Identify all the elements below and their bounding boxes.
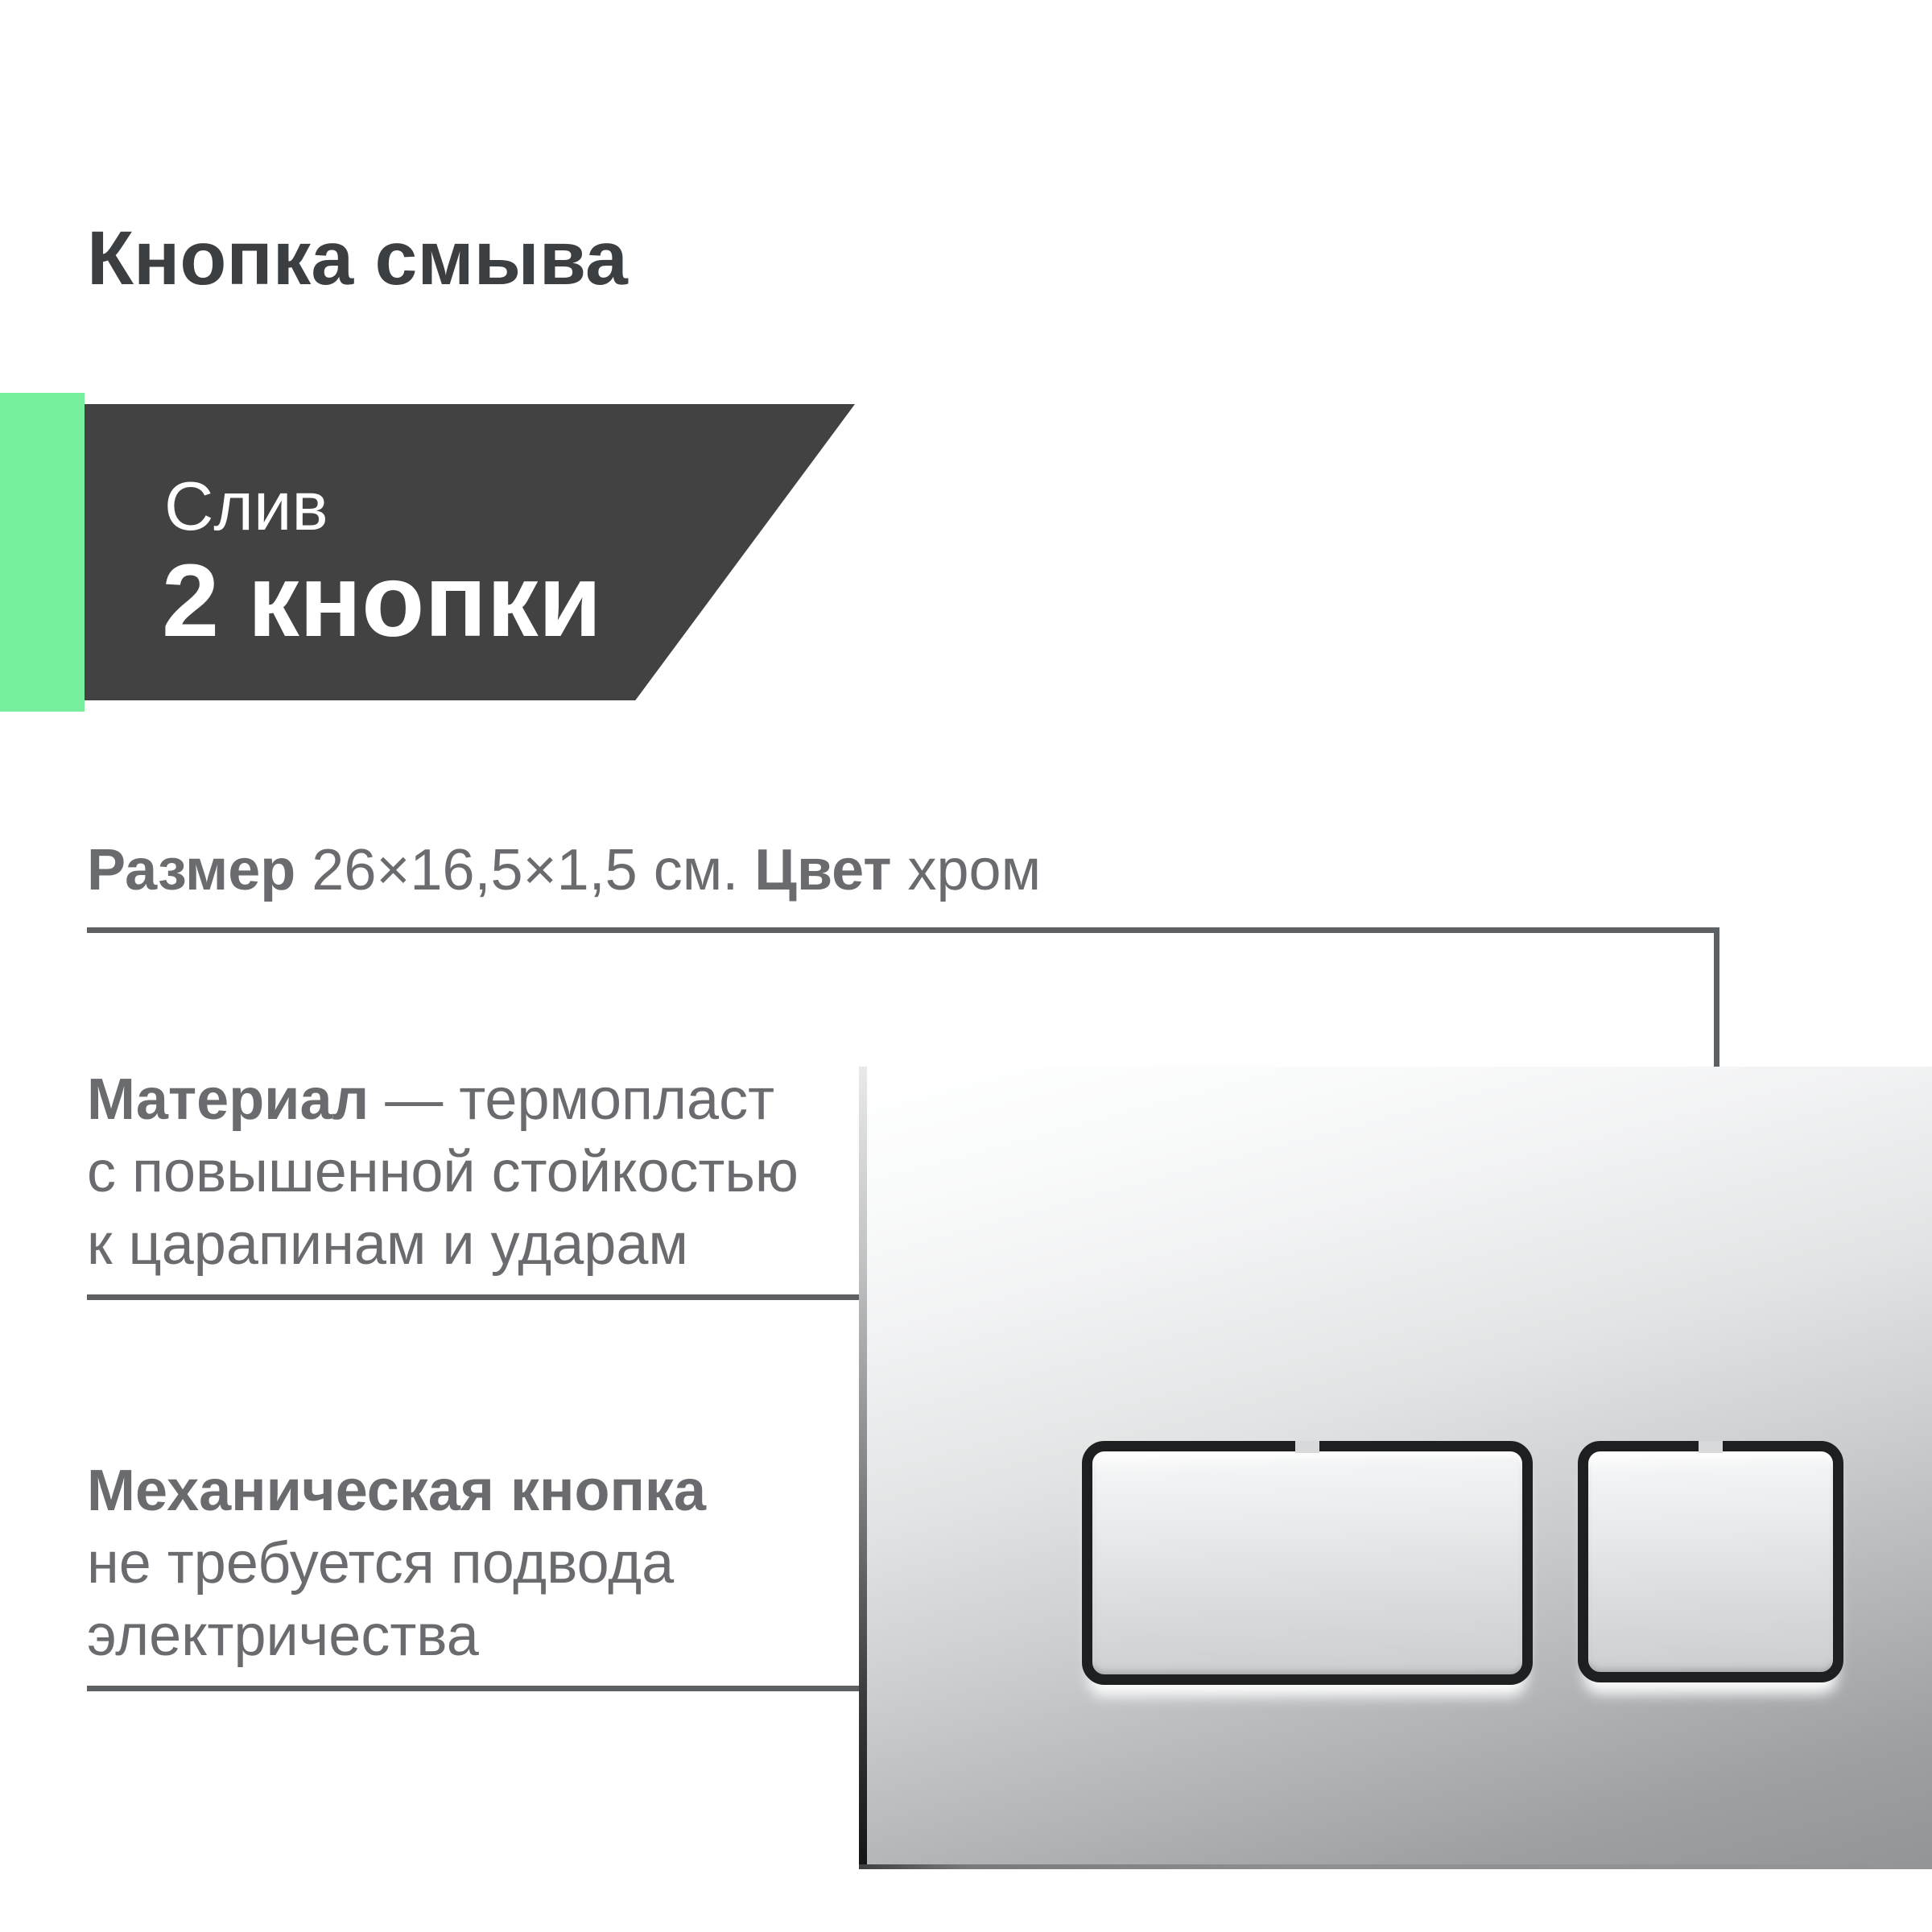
feature-mechanical: Механическая кнопка не требуется подвода… <box>87 1455 706 1672</box>
spec-color-value: хром <box>908 838 1042 902</box>
flush-type-badge: Слив 2 кнопки <box>85 404 855 700</box>
feature-mechanical-line3: электричества <box>87 1600 706 1672</box>
badge-subtitle: Слив <box>164 473 328 541</box>
flush-button-small <box>1578 1441 1843 1682</box>
flush-button-large <box>1082 1441 1533 1685</box>
spec-size-label: Размер <box>87 838 295 902</box>
infographic-canvas: Кнопка смыва Слив 2 кнопки Размер 26×16,… <box>0 0 1932 1932</box>
plate-bottom-edge <box>859 1864 1932 1869</box>
plate-left-edge <box>859 1067 867 1869</box>
spec-size-line: Размер 26×16,5×1,5 см. Цвет хром <box>87 834 1041 906</box>
green-accent-bar <box>0 393 85 712</box>
spec-color-label: Цвет <box>754 838 891 902</box>
feature-mechanical-label: Механическая кнопка <box>87 1455 706 1527</box>
feature-mechanical-line2: не требуется подвода <box>87 1527 706 1600</box>
product-image-flush-plate <box>859 1067 1932 1869</box>
page-title: Кнопка смыва <box>87 221 628 297</box>
feature-material-label: Материал <box>87 1067 369 1132</box>
feature-material-line3: к царапинам и ударам <box>87 1208 799 1281</box>
flush-button-large-notch <box>1295 1441 1319 1453</box>
feature-material: Материал — термопласт с повышенной стойк… <box>87 1063 799 1281</box>
feature-material-rest: — термопласт <box>385 1067 774 1132</box>
connector-line-size <box>87 927 1719 933</box>
spec-size-value: 26×16,5×1,5 см. <box>312 838 738 902</box>
feature-material-line1: Материал — термопласт <box>87 1063 799 1136</box>
badge-value: 2 кнопки <box>162 550 601 653</box>
connector-line-mechanical <box>87 1686 919 1691</box>
feature-material-line2: с повышенной стойкостью <box>87 1136 799 1208</box>
connector-line-material <box>87 1294 919 1300</box>
flush-button-small-notch <box>1699 1441 1723 1453</box>
